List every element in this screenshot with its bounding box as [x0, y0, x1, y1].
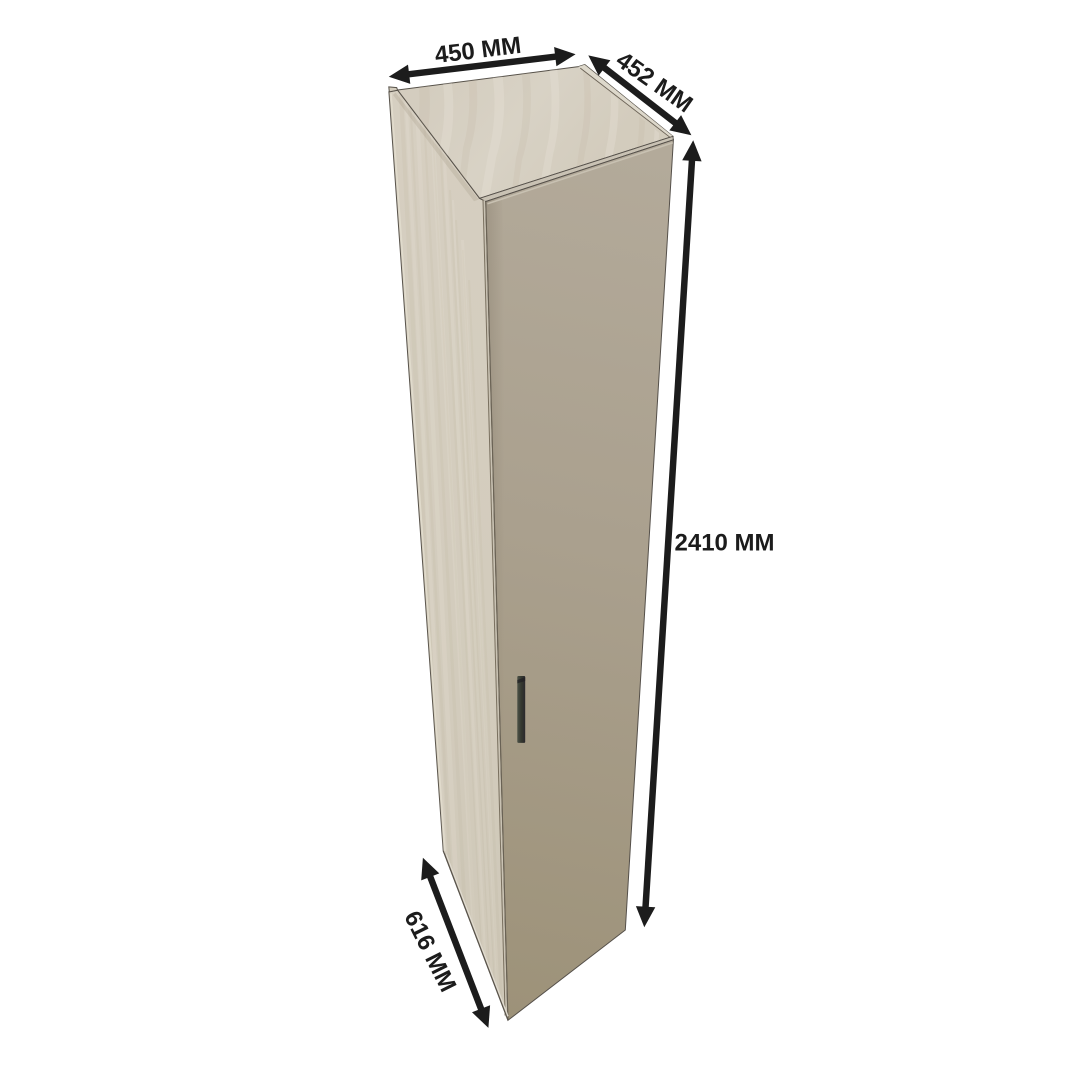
svg-text:2410 MM: 2410 MM — [675, 530, 775, 557]
